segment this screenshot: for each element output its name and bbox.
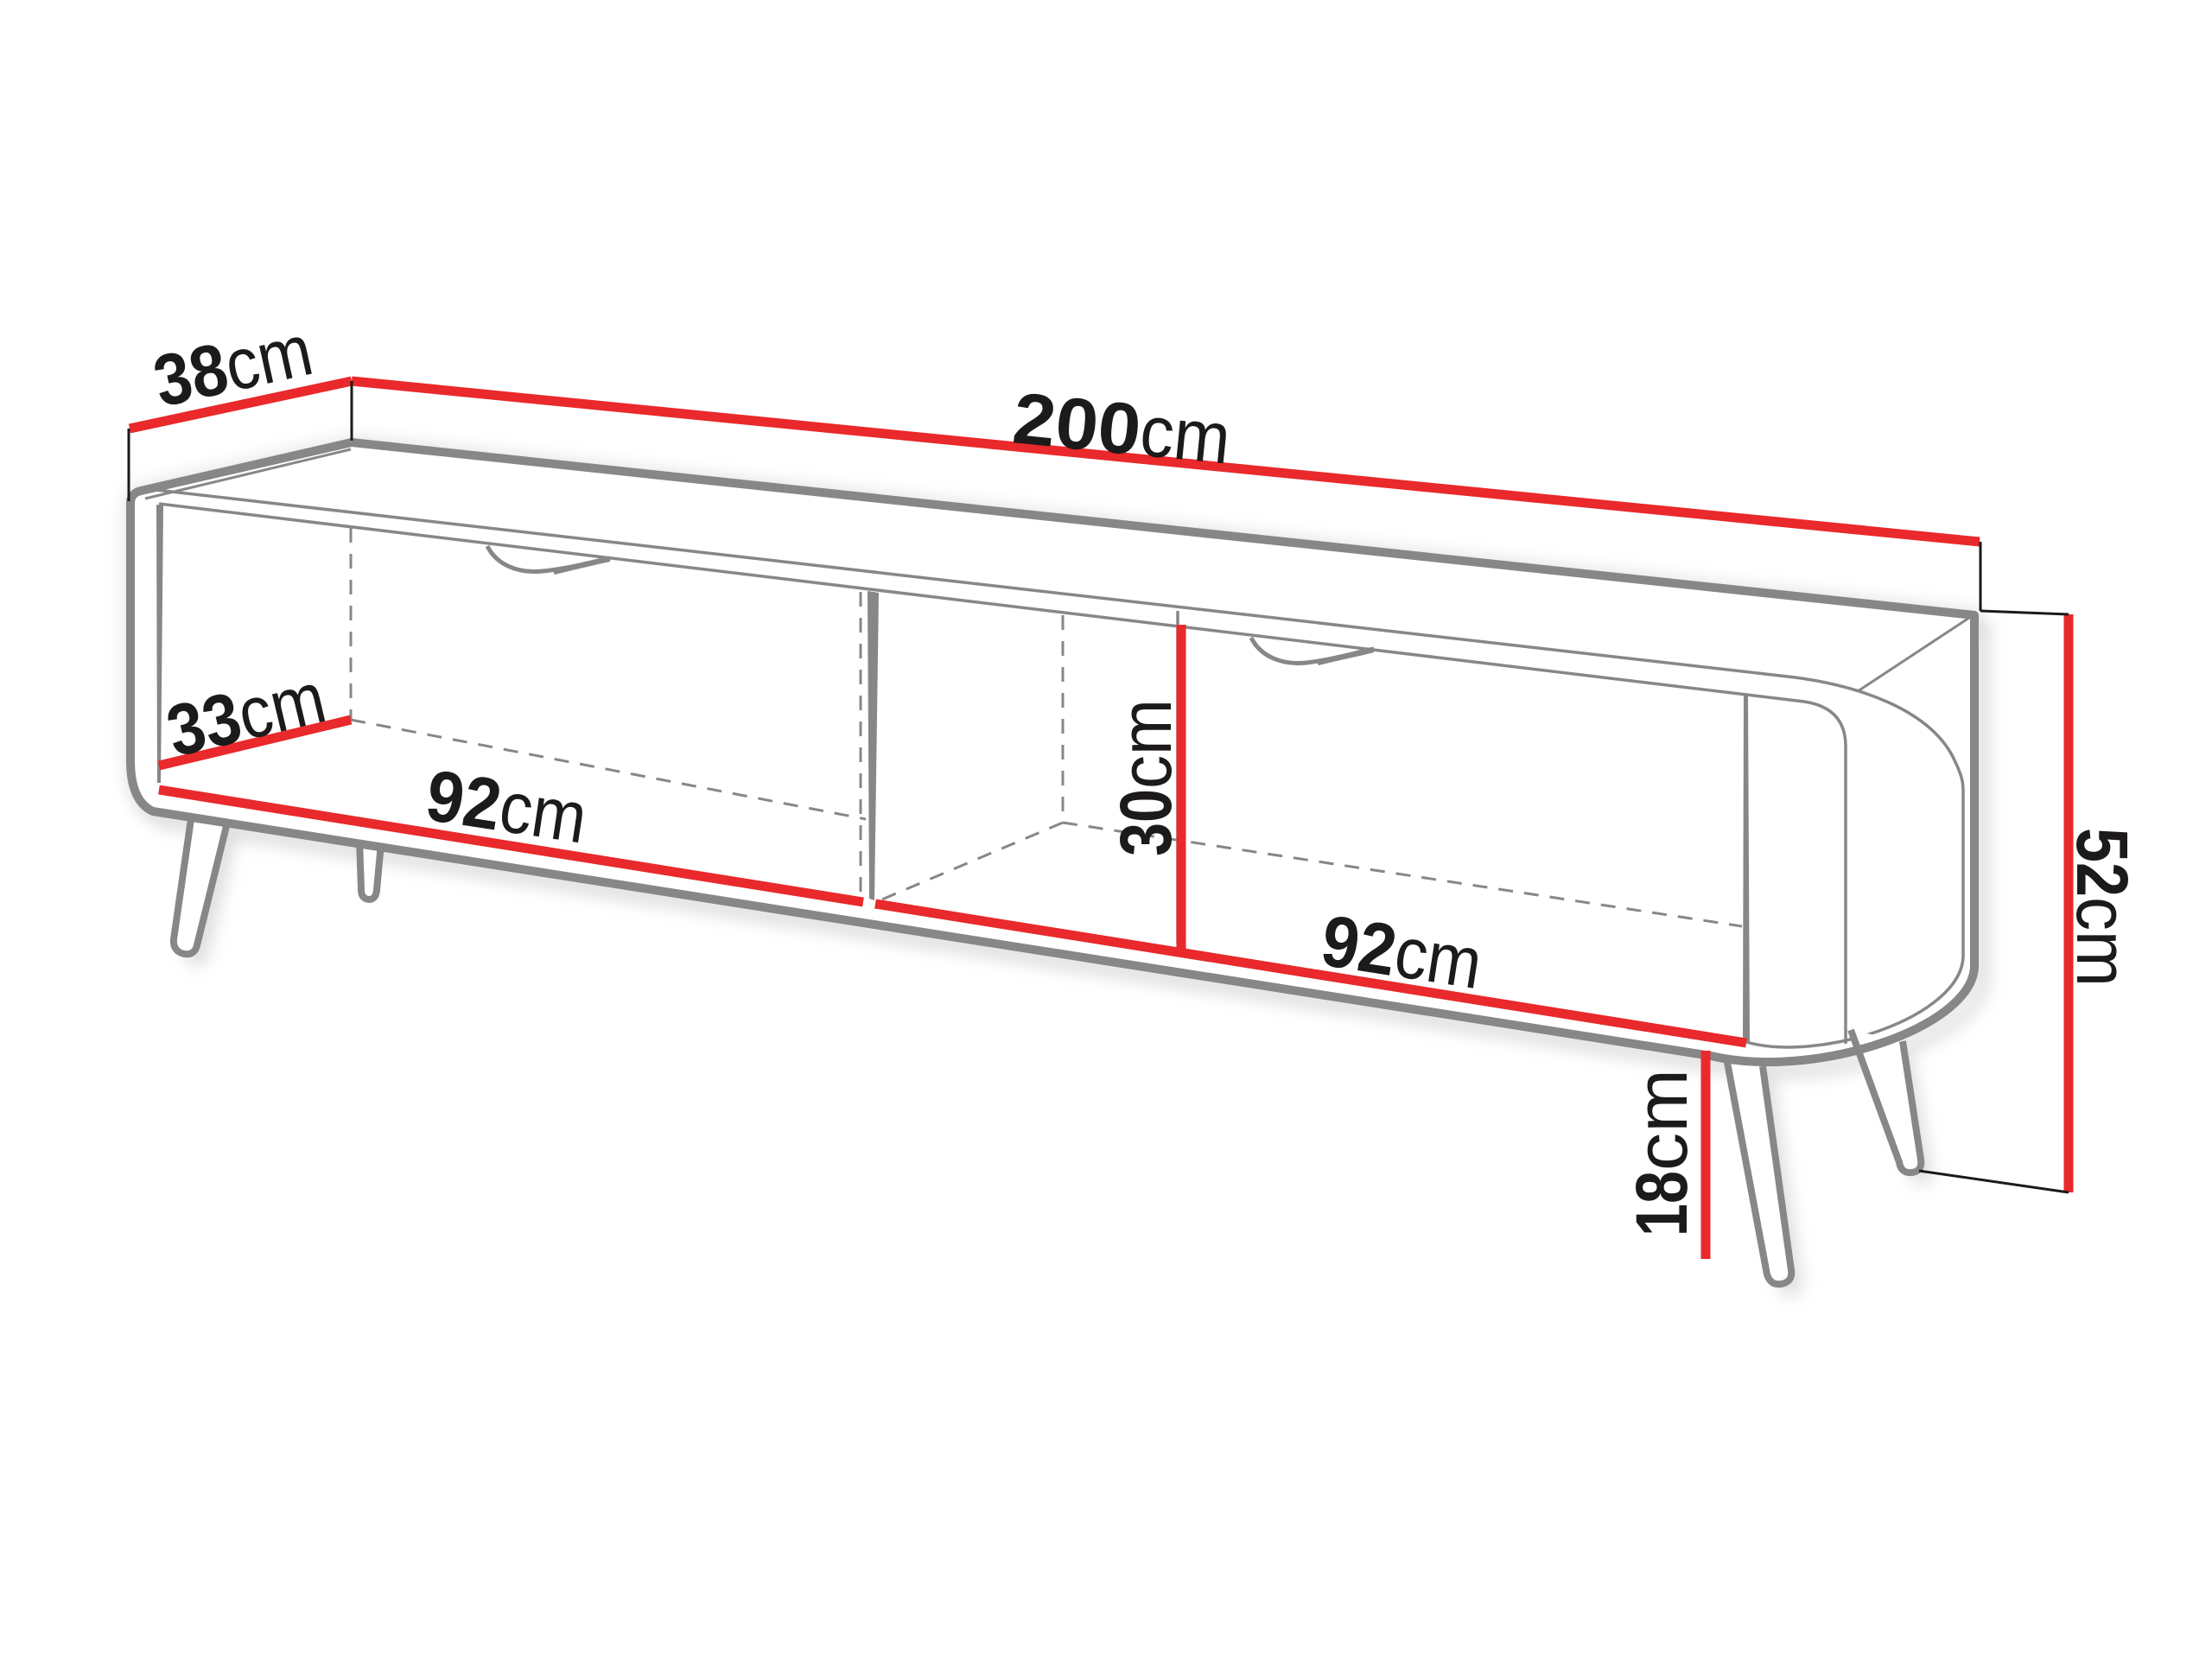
svg-text:200cm: 200cm bbox=[1009, 377, 1234, 479]
svg-text:30cm: 30cm bbox=[1105, 699, 1186, 856]
svg-text:18cm: 18cm bbox=[1621, 1069, 1702, 1236]
svg-text:52cm: 52cm bbox=[2062, 828, 2143, 987]
svg-text:38cm: 38cm bbox=[147, 308, 320, 422]
